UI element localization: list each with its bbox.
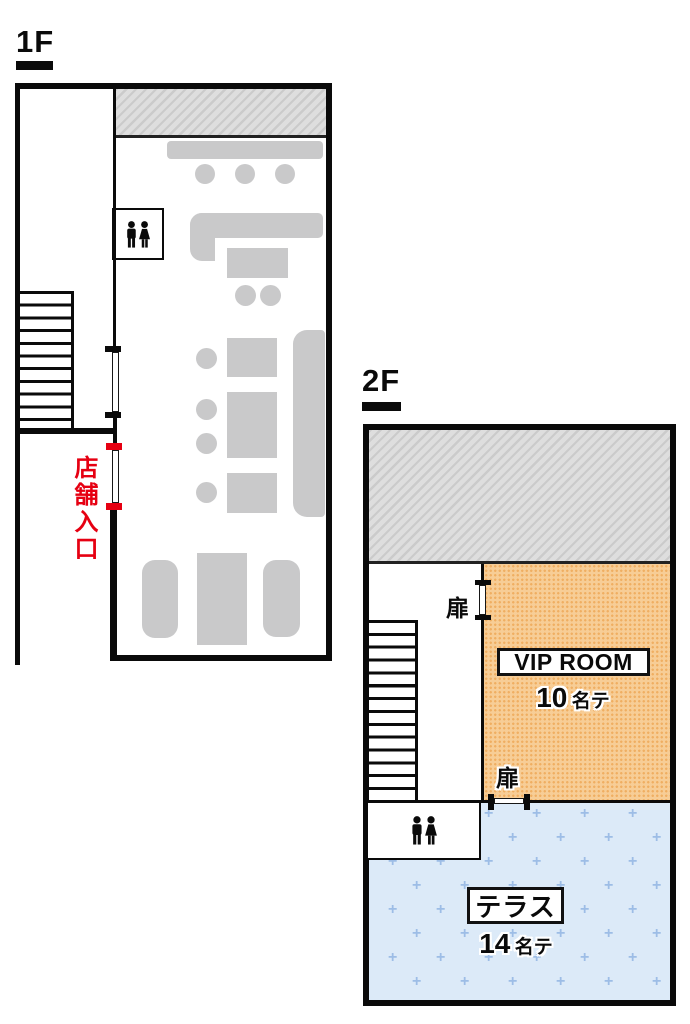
terrace-capacity: 14 名テ <box>446 928 586 960</box>
floor1-label: 1F <box>16 24 54 60</box>
terrace-pattern-mark: + <box>628 902 637 918</box>
table <box>227 248 288 278</box>
floor1-restroom <box>112 208 164 260</box>
sofa <box>263 560 300 637</box>
terrace-pattern-mark: + <box>508 830 517 846</box>
table <box>227 392 277 458</box>
vip-room-capacity: 10 名テ <box>500 682 646 714</box>
terrace-pattern-mark: + <box>556 830 565 846</box>
floor1-hatched-area <box>115 89 326 138</box>
terrace-pattern-mark: + <box>484 998 493 1000</box>
table <box>227 473 277 513</box>
terrace-pattern-mark: + <box>436 950 445 966</box>
floor1-inner-wall <box>113 89 116 346</box>
terrace-pattern-mark: + <box>628 806 637 822</box>
terrace-pattern-mark: + <box>604 926 613 942</box>
floor1-inner-wall <box>113 418 117 443</box>
bench-seat <box>293 330 325 517</box>
vip-capacity-count: 10 <box>536 682 567 713</box>
floor2-hatched-area <box>369 430 670 564</box>
terrace-pattern-mark: + <box>532 998 541 1000</box>
vip-door-label: 扉 <box>446 589 469 623</box>
sofa <box>142 560 178 638</box>
door-leaf <box>112 352 119 412</box>
terrace-pattern-mark: + <box>460 974 469 990</box>
counter-top-bar <box>167 141 323 159</box>
floor2-wall-right <box>670 424 676 1006</box>
terrace-pattern-mark: + <box>388 998 397 1000</box>
terrace-pattern-mark: + <box>556 974 565 990</box>
chair <box>260 285 281 306</box>
terrace-pattern-mark: + <box>652 830 661 846</box>
store-entrance-label: 店舗入口 <box>71 455 96 563</box>
stool <box>195 164 215 184</box>
floor1-stairs <box>20 291 74 428</box>
door-cap <box>524 794 530 810</box>
stool <box>235 164 255 184</box>
terrace-pattern-mark: + <box>580 998 589 1000</box>
counter-bar <box>190 213 323 238</box>
floorplan-canvas: 1F <box>0 0 690 1024</box>
terrace-pattern-mark: + <box>412 974 421 990</box>
terrace-pattern-mark: + <box>652 878 661 894</box>
terrace-pattern-mark: + <box>532 806 541 822</box>
floor2-wall-bottom <box>363 1000 676 1006</box>
table <box>227 338 277 377</box>
floor2-restroom <box>366 801 481 860</box>
entrance-door-leaf <box>112 450 119 503</box>
terrace-pattern-mark: + <box>580 854 589 870</box>
floor2-inner-wall <box>481 564 484 580</box>
floor1-label-underline <box>16 61 53 70</box>
floor2-inner-wall <box>481 620 484 801</box>
terrace-pattern-mark: + <box>604 974 613 990</box>
terrace-pattern-mark: + <box>412 926 421 942</box>
terrace-pattern-mark: + <box>652 926 661 942</box>
terrace-pattern-mark: + <box>628 950 637 966</box>
terrace-door-label: 扉 <box>496 759 519 793</box>
terrace-pattern-mark: + <box>604 878 613 894</box>
floor1-wall-bottom <box>111 655 332 661</box>
terrace-pattern-mark: + <box>628 998 637 1000</box>
terrace-capacity-unit: 名テ <box>515 937 553 958</box>
chair <box>196 433 217 454</box>
terrace-pattern-mark: + <box>412 878 421 894</box>
terrace-pattern-mark: + <box>508 974 517 990</box>
entrance-door-cap <box>106 443 122 450</box>
vip-door-leaf <box>479 585 486 615</box>
terrace-pattern-mark: + <box>436 998 445 1000</box>
vip-room-name: VIP ROOM <box>497 648 650 676</box>
chair <box>235 285 256 306</box>
terrace-pattern-mark: + <box>436 902 445 918</box>
floor1-inner-wall-thick <box>110 510 117 661</box>
chair <box>196 348 217 369</box>
floor2-label-underline <box>362 402 401 411</box>
floor2-label: 2F <box>362 363 400 399</box>
table <box>197 553 247 645</box>
chair <box>196 482 217 503</box>
terrace-pattern-mark: + <box>652 974 661 990</box>
terrace-pattern-mark: + <box>388 902 397 918</box>
restroom-icon <box>407 816 441 845</box>
restroom-icon <box>122 221 154 248</box>
terrace-name: テラス <box>467 887 564 924</box>
vip-capacity-unit: 名テ <box>572 691 610 712</box>
terrace-pattern-mark: + <box>580 902 589 918</box>
terrace-pattern-mark: + <box>484 854 493 870</box>
terrace-pattern-mark: + <box>604 830 613 846</box>
chair <box>196 399 217 420</box>
terrace-door-leaf <box>494 798 524 804</box>
terrace-capacity-count: 14 <box>479 928 510 959</box>
terrace-pattern-mark: + <box>532 854 541 870</box>
floor1-stairwell-wall <box>15 428 113 434</box>
terrace-pattern-mark: + <box>628 854 637 870</box>
floor2-stairs <box>369 620 418 800</box>
terrace-pattern-mark: + <box>388 950 397 966</box>
stool <box>275 164 295 184</box>
terrace-pattern-mark: + <box>580 806 589 822</box>
floor1-wall-right <box>326 83 332 661</box>
entrance-door-cap <box>106 503 122 510</box>
